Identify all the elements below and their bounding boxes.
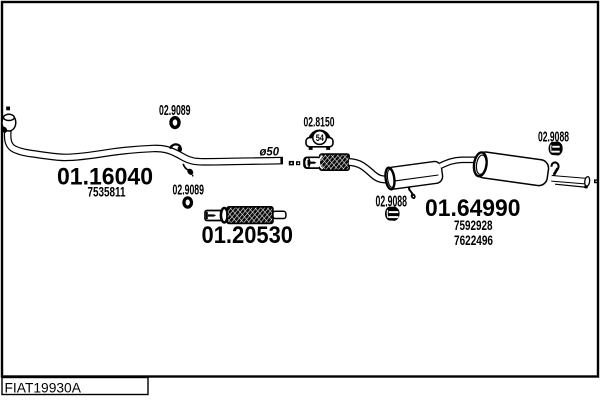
svg-text:02.8150: 02.8150 [304,115,335,130]
svg-text:54: 54 [316,133,325,144]
svg-text:ø50: ø50 [260,145,280,159]
svg-text:FIAT19930A: FIAT19930A [5,381,82,396]
svg-text:7535811: 7535811 [88,184,126,200]
svg-text:01.20530: 01.20530 [202,222,294,249]
svg-text:02.9089: 02.9089 [173,182,205,198]
svg-text:7622496: 7622496 [454,232,493,248]
svg-text:7592928: 7592928 [454,217,493,233]
